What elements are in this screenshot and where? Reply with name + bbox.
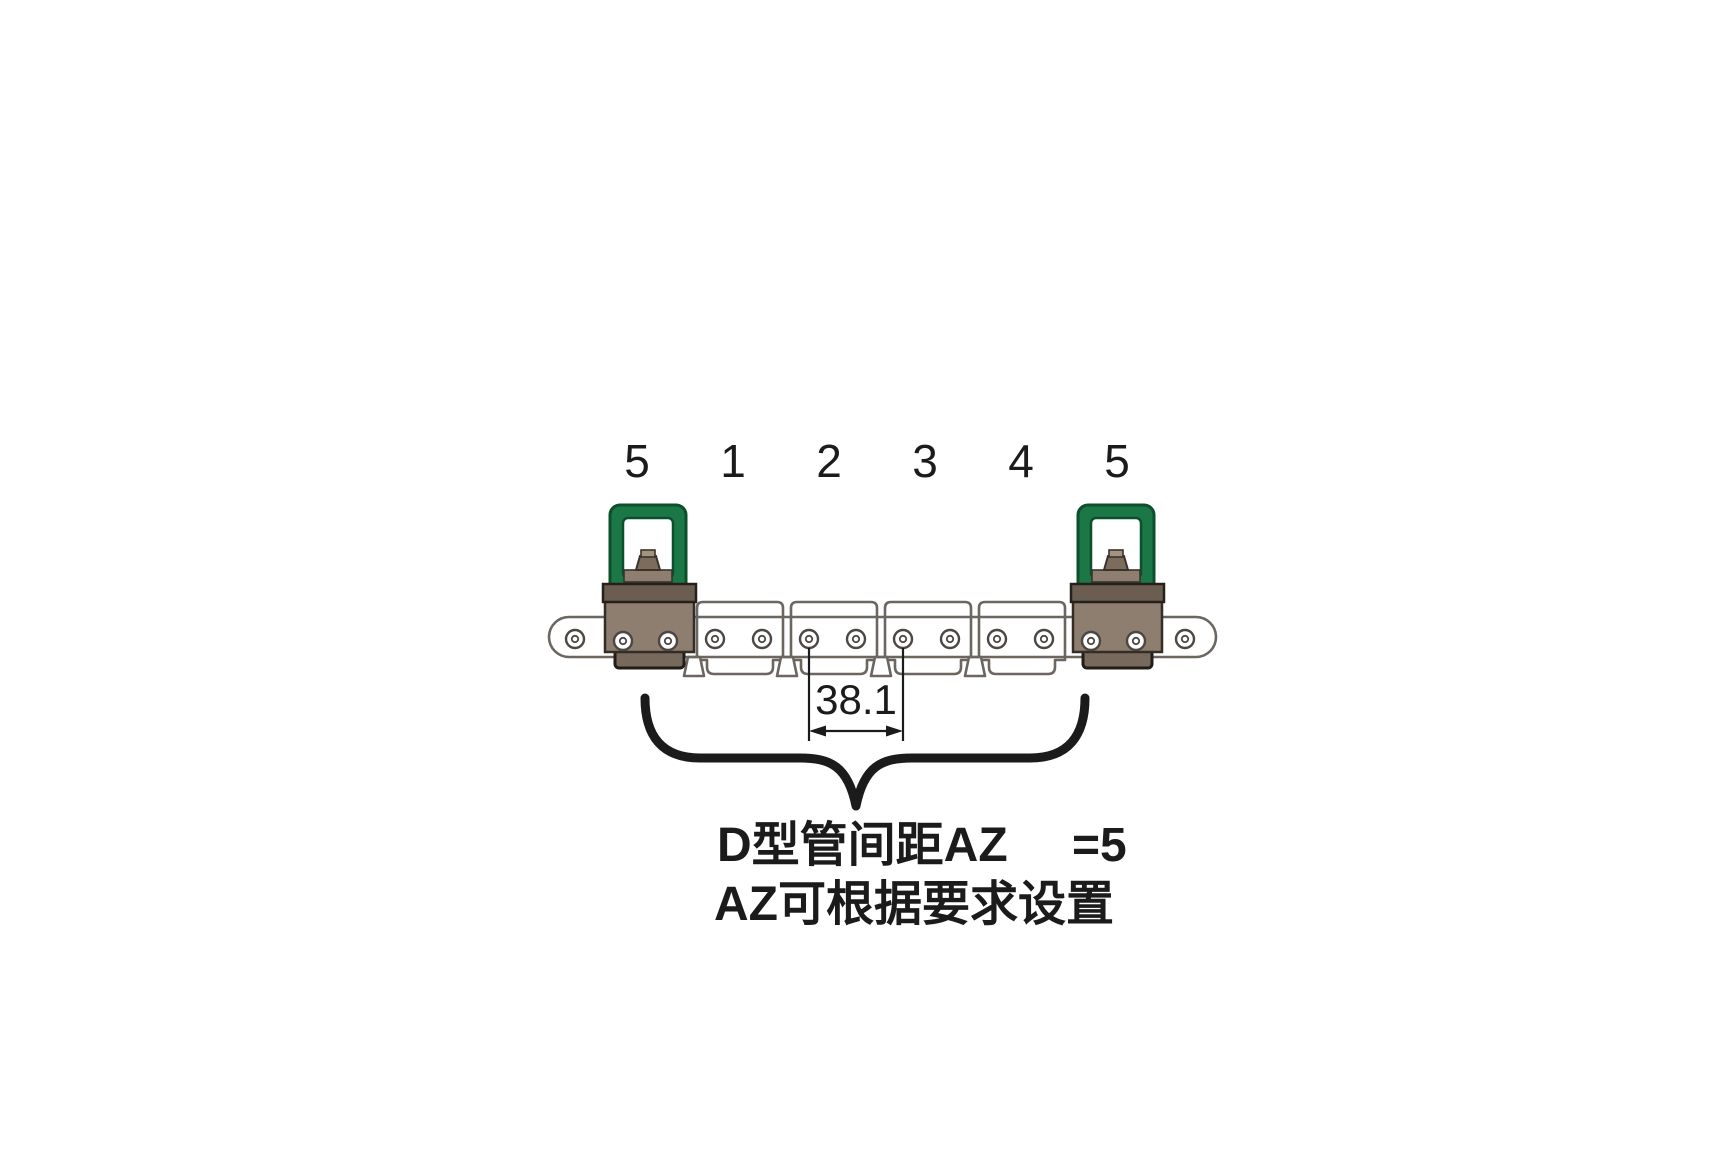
hole (706, 630, 724, 648)
hole (1082, 632, 1100, 650)
clip-plates (684, 602, 1065, 676)
label-left-end-clamp: 5 (624, 435, 650, 487)
label-clip-1: 1 (720, 435, 746, 487)
link-connector (965, 657, 985, 676)
caption-line1: D型管间距AZ (717, 819, 1008, 872)
hole (894, 630, 912, 648)
hole (800, 630, 818, 648)
pipe-clamp-diagram: 5 1 2 3 4 5 (0, 0, 1735, 1157)
dimension-arrow-left (809, 726, 826, 737)
position-labels: 5 1 2 3 4 5 (624, 435, 1130, 487)
caption-line2: AZ可根据要求设置 (714, 878, 1114, 931)
hole (753, 630, 771, 648)
caption-line1-value: =5 (1072, 819, 1127, 872)
link-connector (871, 657, 891, 676)
hole (941, 630, 959, 648)
link-connector (684, 657, 704, 676)
label-clip-2: 2 (816, 435, 842, 487)
clamp-block-right (1071, 584, 1164, 668)
hole (659, 632, 677, 650)
hole (988, 630, 1006, 648)
link-connector (777, 657, 797, 676)
clamp-block-left (603, 584, 696, 668)
dimension-value: 38.1 (815, 676, 897, 723)
hole (847, 630, 865, 648)
hole (1127, 632, 1145, 650)
label-clip-3: 3 (912, 435, 938, 487)
label-clip-4: 4 (1008, 435, 1034, 487)
dimension-arrow-right (886, 726, 903, 737)
hole (566, 630, 584, 648)
caption: D型管间距AZ =5 AZ可根据要求设置 (714, 819, 1127, 931)
hole (1176, 630, 1194, 648)
hole (1035, 630, 1053, 648)
label-right-end-clamp: 5 (1104, 435, 1130, 487)
hole (614, 632, 632, 650)
